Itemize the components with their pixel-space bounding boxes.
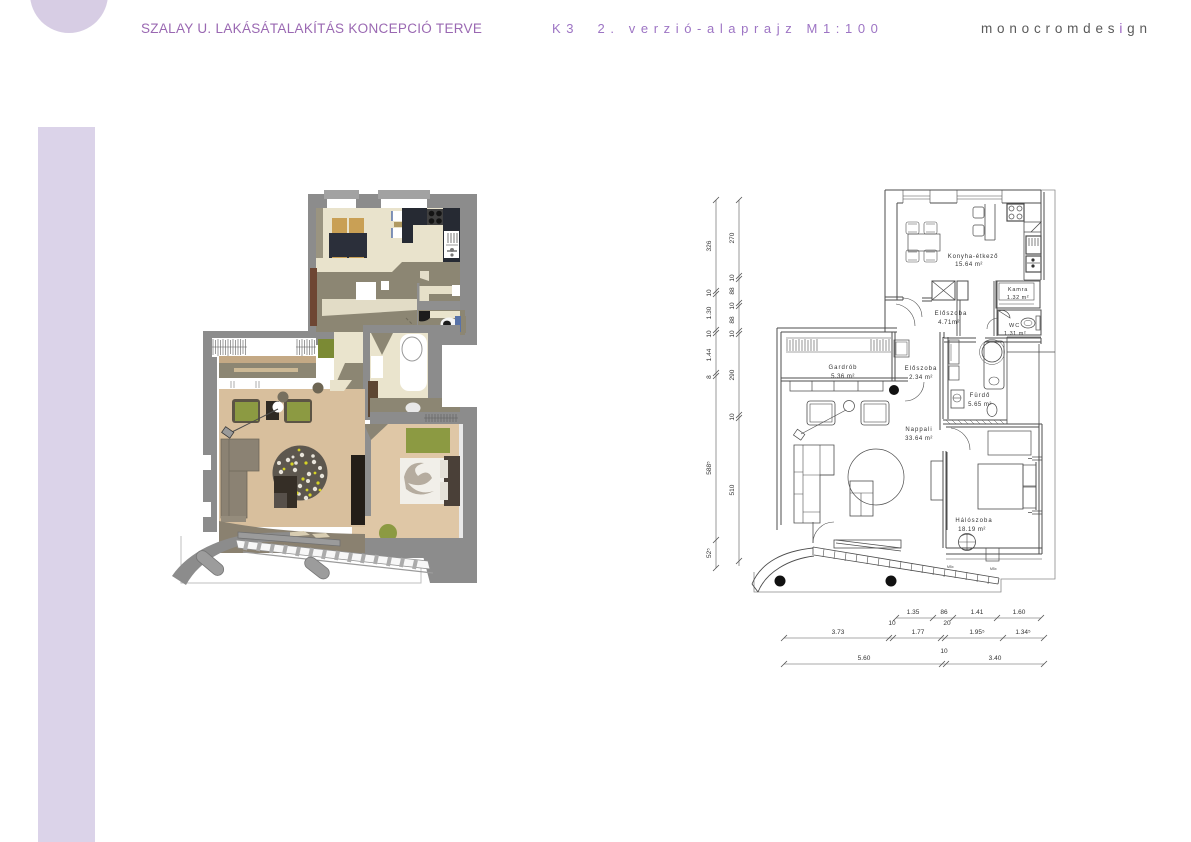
svg-text:270: 270	[729, 232, 736, 243]
svg-text:1.31 m²: 1.31 m²	[1004, 331, 1026, 337]
svg-text:588⁵: 588⁵	[706, 461, 713, 475]
svg-text:86: 86	[940, 609, 948, 616]
svg-text:1.30: 1.30	[706, 306, 713, 319]
svg-text:Gardrób: Gardrób	[828, 365, 857, 371]
svg-text:4.71m²: 4.71m²	[938, 320, 960, 326]
svg-text:52⁵: 52⁵	[706, 548, 713, 558]
svg-text:88: 88	[729, 316, 736, 324]
svg-text:1.44: 1.44	[706, 348, 713, 361]
svg-text:M5x: M5x	[990, 567, 997, 571]
svg-text:5.36 m²: 5.36 m²	[831, 374, 855, 380]
svg-text:10: 10	[706, 330, 713, 338]
svg-text:Előszoba: Előszoba	[935, 311, 968, 317]
svg-text:8: 8	[706, 375, 713, 379]
svg-text:290: 290	[729, 369, 736, 380]
svg-text:20: 20	[943, 620, 951, 627]
svg-text:Kamra: Kamra	[1008, 287, 1028, 293]
svg-text:10: 10	[729, 302, 736, 310]
svg-text:1.32 m²: 1.32 m²	[1007, 295, 1029, 301]
svg-text:Fürdő: Fürdő	[970, 393, 991, 399]
svg-text:WC: WC	[1009, 323, 1020, 329]
svg-text:18.19 m²: 18.19 m²	[958, 527, 986, 533]
svg-text:15.64 m²: 15.64 m²	[955, 262, 983, 268]
svg-text:Konyha-étkező: Konyha-étkező	[948, 254, 998, 260]
svg-text:326: 326	[706, 240, 713, 251]
svg-text:M5x: M5x	[947, 565, 954, 569]
svg-text:2.34 m²: 2.34 m²	[909, 375, 933, 381]
svg-text:1.60: 1.60	[1013, 609, 1026, 616]
svg-text:10: 10	[729, 413, 736, 421]
svg-text:88: 88	[729, 287, 736, 295]
svg-text:10: 10	[888, 620, 896, 627]
svg-text:Nappali: Nappali	[905, 427, 932, 433]
svg-text:10: 10	[729, 274, 736, 282]
svg-text:Hálószoba: Hálószoba	[955, 518, 992, 524]
svg-text:5.60: 5.60	[858, 655, 871, 662]
svg-text:3.73: 3.73	[832, 629, 845, 636]
svg-text:10: 10	[940, 648, 948, 655]
svg-text:1.34⁵: 1.34⁵	[1015, 629, 1031, 636]
svg-text:3.40: 3.40	[989, 655, 1002, 662]
svg-text:1.77: 1.77	[912, 629, 925, 636]
svg-text:33.64 m²: 33.64 m²	[905, 436, 933, 442]
svg-text:510: 510	[729, 484, 736, 495]
svg-text:1.35: 1.35	[907, 609, 920, 616]
svg-text:Előszoba: Előszoba	[905, 366, 938, 372]
svg-text:10: 10	[706, 289, 713, 297]
svg-text:10: 10	[729, 330, 736, 338]
svg-text:1.95⁵: 1.95⁵	[969, 629, 985, 636]
svg-text:5.65 m²: 5.65 m²	[968, 402, 992, 408]
svg-text:1.41: 1.41	[971, 609, 984, 616]
